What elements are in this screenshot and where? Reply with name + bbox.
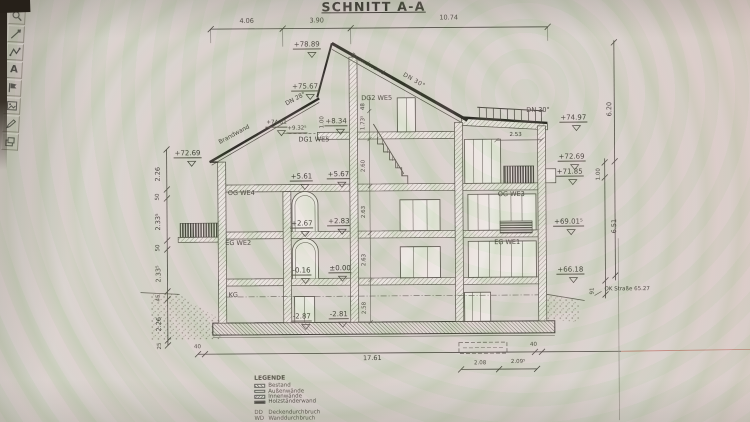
dim-right-100: 1.00	[597, 168, 603, 180]
room-og-we4: OG WE4	[228, 190, 255, 197]
legend-swatch-empty	[254, 390, 265, 394]
dim-inner-260: 2.60	[362, 160, 368, 172]
windows-doors	[291, 97, 537, 323]
legend-swatch-hatch	[254, 384, 265, 388]
level-upper-left: +75.67	[291, 83, 319, 92]
drawing-sheet: SCHNITT A-A 4.06 3.90 10.74 +78.89 +75.6…	[0, 0, 750, 422]
dim-top-3: 10.74	[439, 14, 458, 21]
dim-left-3: 2.33⁵	[155, 213, 162, 230]
dim-inner-263b: 2.63	[362, 254, 368, 266]
dim-inner-253: 2.53	[509, 133, 521, 139]
dim-inner-100: 1.00	[320, 116, 326, 128]
dim-top-2: 3.90	[309, 17, 324, 24]
legend-abbr-row: WDWanddurchbruch	[254, 416, 320, 422]
level-annex-roof: +74.97	[559, 115, 587, 124]
rel-level-267: +2.67	[290, 220, 314, 229]
room-dg1-we5: DG1 WE5	[298, 136, 329, 143]
dim-inner-48: 48	[361, 103, 367, 110]
dim-left-1: 2.26	[155, 167, 162, 182]
level-mid-left: +74.81	[265, 121, 287, 128]
measure-tool-button[interactable]	[7, 25, 25, 43]
dim-left-2: 50	[156, 193, 162, 200]
dim-bottom-40l: 40	[194, 345, 201, 351]
legend-item-label: Holzständerwand	[268, 399, 316, 405]
level-right-6618: +66.18	[556, 267, 584, 276]
rel-level-m287: -2.87	[292, 313, 312, 321]
legend-swatch-hatch2	[254, 395, 265, 399]
text-tool-button[interactable]: A	[5, 61, 23, 79]
dim-top-1: 4.06	[239, 18, 254, 25]
legend-abbr-key: WD	[254, 416, 268, 422]
ruler-icon	[10, 28, 22, 40]
dim-inner-263a: 2.63	[362, 206, 368, 218]
level-ridge: +78.89	[293, 41, 321, 50]
dim-bottom-2095: 2.09⁵	[511, 360, 525, 366]
dim-left-7: 2.26	[156, 317, 163, 332]
dim-right-651: 6.51	[611, 219, 618, 234]
room-kg: KG	[229, 292, 238, 299]
dim-left-4: 50	[156, 244, 162, 251]
flag-icon	[7, 82, 19, 94]
dim-left-6: 45	[157, 294, 163, 301]
monitor-bezel-corner	[0, 0, 30, 13]
polyline-icon	[9, 46, 21, 58]
level-right-7185: +71.85	[556, 169, 584, 178]
room-dg2-we5: DG2 WE5	[361, 95, 392, 102]
legend-swatch-solid	[254, 400, 265, 404]
dim-bottom-208: 2.08	[474, 361, 486, 367]
dim-right-91: 91	[591, 287, 597, 294]
dim-left-8: 25	[158, 342, 164, 349]
rel-level-m281: -2.81	[329, 311, 349, 319]
rel-level-283: +2.83	[327, 218, 351, 227]
polyline-tool-button[interactable]	[6, 43, 24, 61]
level-right-6901: +69.01⁵	[553, 219, 584, 228]
rel-level-567: +5.67	[327, 171, 351, 180]
rel-level-834: +8.34	[324, 118, 348, 127]
dim-bottom-40r: 40	[530, 343, 537, 349]
dim-bottom-1761: 17.61	[363, 355, 382, 362]
dim-right-620: 6.20	[606, 102, 613, 117]
legend-item: Holzständerwand	[254, 399, 320, 405]
monitor-bezel-edge	[0, 0, 7, 170]
room-eg-we2: EG WE2	[225, 240, 251, 247]
legend-abbreviations: DDDeckendurchbruch WDWanddurchbruch	[254, 409, 320, 422]
foundation-slab	[213, 321, 555, 338]
level-right-7269: +72.69	[558, 154, 586, 163]
sheet-frame	[618, 238, 619, 420]
legend-title: LEGENDE	[254, 374, 320, 381]
image-icon	[6, 100, 18, 112]
rel-level-561: +5.61	[290, 173, 314, 182]
dim-left-5: 2.33⁵	[155, 265, 162, 282]
monitor-photo: A	[0, 0, 750, 422]
legend: LEGENDE Bestand Außenwände Innenwände Ho…	[254, 374, 320, 422]
legend-abbr-label: Wanddurchbruch	[268, 416, 315, 422]
room-og-we3: OG WE3	[498, 191, 525, 198]
rel-level-000: ±0.00	[328, 265, 352, 274]
rel-level-m016: -0.16	[291, 267, 311, 275]
dim-inner-1735: 1.73⁵	[361, 116, 367, 130]
drawing-title: SCHNITT A-A	[321, 0, 425, 13]
level-eave-left: +72.69	[174, 150, 202, 159]
dn30-annex-label: DN 30°	[526, 107, 550, 114]
text-tool-icon: A	[10, 65, 18, 75]
rel-level-932: +9.32⁵	[286, 126, 307, 133]
street-level-label: OK Straße 65.27	[605, 287, 650, 293]
room-eg-we1: EG WE1	[494, 239, 520, 246]
dim-inner-258: 2.58	[363, 302, 369, 314]
